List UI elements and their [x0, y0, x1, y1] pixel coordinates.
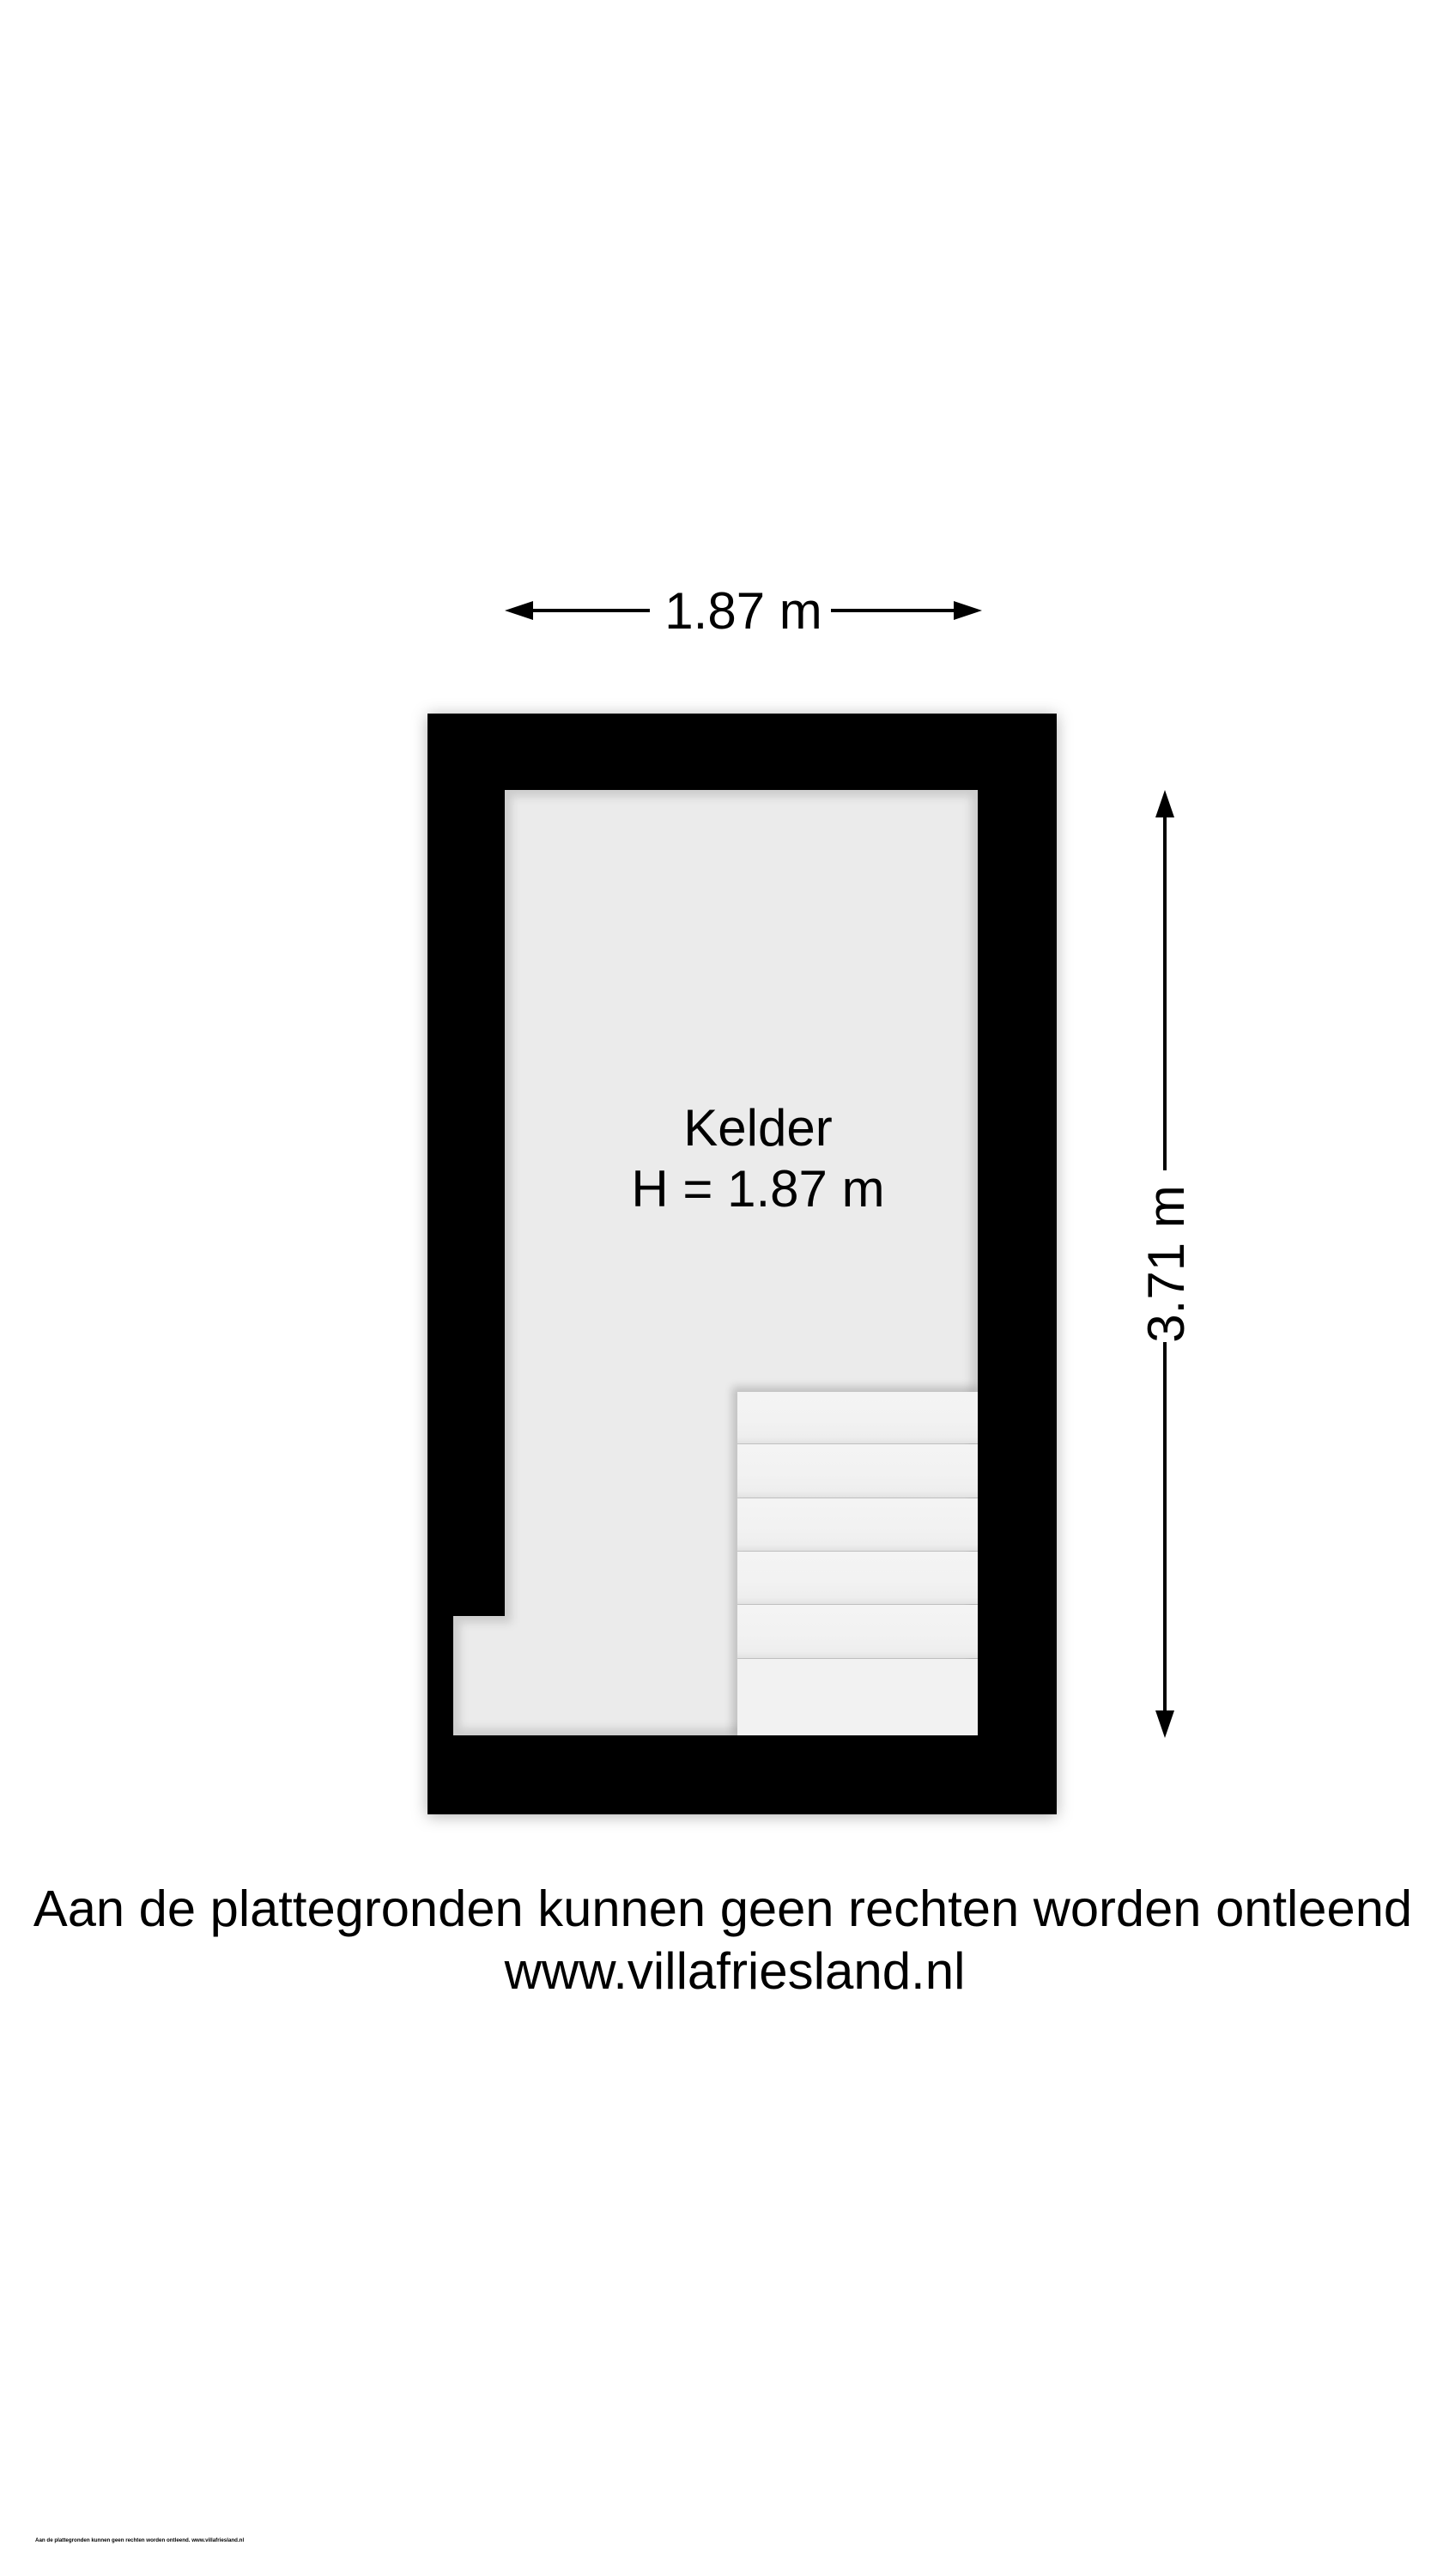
svg-text:Aan de plattegronden kunnen ge: Aan de plattegronden kunnen geen rechten…: [33, 1880, 1412, 1937]
svg-text:Aan de plattegronden kunnen ge: Aan de plattegronden kunnen geen rechten…: [35, 2537, 244, 2543]
svg-text:www.villafriesland.nl: www.villafriesland.nl: [504, 1942, 966, 2000]
svg-text:1.87 m: 1.87 m: [664, 582, 822, 640]
svg-text:H = 1.87 m: H = 1.87 m: [631, 1160, 884, 1218]
svg-text:3.71 m: 3.71 m: [1137, 1185, 1195, 1342]
svg-text:Kelder: Kelder: [683, 1099, 832, 1157]
